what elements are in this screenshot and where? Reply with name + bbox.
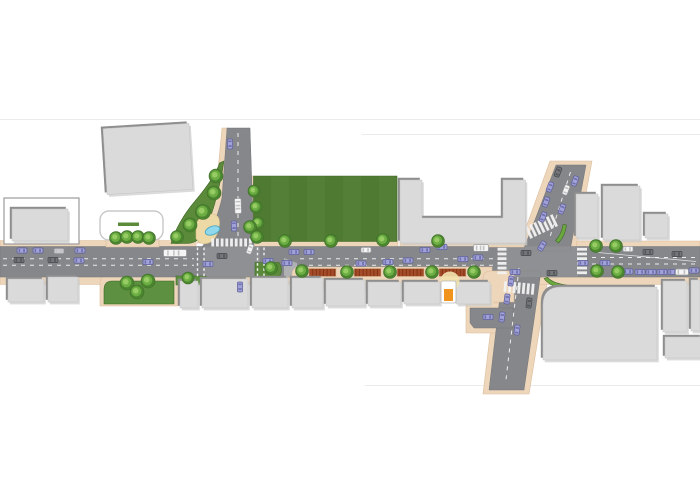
crosswalk-bar (221, 239, 224, 247)
tree (279, 235, 292, 248)
tree (250, 201, 262, 213)
building (250, 276, 290, 311)
tree (296, 265, 309, 278)
site-plan-drawing (0, 0, 700, 500)
crosswalk-bar (225, 239, 228, 247)
vehicle (356, 261, 366, 266)
vehicle (14, 257, 24, 262)
tree (248, 185, 260, 197)
vehicle (676, 269, 689, 275)
crosswalk-bar (498, 267, 507, 270)
vehicle (17, 248, 27, 253)
crosswalk-bar (498, 253, 507, 256)
vehicle (657, 269, 667, 274)
kiosk-roof (444, 289, 453, 301)
tree (207, 186, 221, 200)
building (10, 207, 70, 244)
tree (182, 272, 194, 284)
vehicle (203, 261, 213, 266)
vehicle (689, 268, 699, 273)
crosswalk-bar (577, 253, 587, 256)
crosswalk-bar (244, 239, 247, 247)
tree (171, 231, 184, 244)
building (290, 276, 325, 311)
crosswalk-bar (235, 239, 238, 247)
vehicle (74, 258, 84, 263)
vehicle (217, 253, 227, 258)
crosswalk-bar (498, 262, 507, 265)
vehicle (474, 245, 489, 252)
vehicle (646, 269, 656, 274)
vehicle (420, 247, 430, 252)
zebra-crosswalk (211, 239, 251, 247)
vehicle (304, 249, 314, 254)
vehicle (526, 298, 532, 309)
tree (591, 265, 604, 278)
street-planter (309, 269, 336, 277)
crosswalk-bar (230, 239, 233, 247)
vehicle (234, 198, 241, 213)
crosswalk-bar (577, 248, 587, 251)
building (663, 335, 700, 361)
vehicle (473, 255, 483, 260)
vehicle (227, 139, 233, 149)
vehicle (521, 250, 531, 255)
tree (141, 274, 155, 288)
vehicle (514, 325, 520, 336)
crosswalk-bar (216, 239, 219, 247)
vehicle (33, 248, 43, 253)
vehicle (231, 221, 237, 231)
crosswalk-bar (498, 248, 507, 251)
park-lawn (254, 176, 398, 242)
building (324, 278, 367, 309)
vehicle (48, 257, 58, 262)
tree (325, 235, 338, 248)
building (574, 192, 600, 241)
vehicle (237, 282, 242, 292)
crosswalk-bar (577, 257, 587, 260)
tree (341, 266, 354, 279)
crosswalk-bar (577, 271, 587, 274)
tree (612, 266, 625, 279)
tree (384, 266, 397, 279)
vehicle (672, 251, 682, 256)
shelter-canopy-bar (118, 223, 139, 227)
vehicle (499, 312, 505, 323)
building (689, 278, 700, 334)
building (541, 285, 659, 363)
tree (610, 240, 623, 253)
building (200, 277, 250, 311)
building (643, 212, 670, 241)
building (46, 275, 80, 305)
tree (209, 169, 223, 183)
tree (130, 285, 144, 299)
crosswalk-bar (211, 239, 214, 247)
tree (468, 266, 481, 279)
vehicle (600, 260, 610, 265)
tree (377, 234, 390, 247)
building (398, 178, 528, 246)
crosswalk-bar (240, 239, 243, 247)
tree (590, 240, 603, 253)
building (402, 280, 442, 307)
vehicle (361, 247, 371, 252)
building (601, 184, 642, 243)
tree (196, 205, 211, 220)
vehicle (578, 260, 588, 265)
vehicle (54, 248, 64, 253)
vehicle (164, 250, 187, 257)
crosswalk-bar (577, 267, 587, 270)
vehicle (623, 246, 633, 251)
vehicle (504, 294, 510, 305)
building (454, 280, 492, 307)
vehicle (547, 270, 557, 275)
vehicle (643, 249, 653, 254)
tree (143, 232, 156, 245)
vehicle (635, 269, 645, 274)
tree (426, 266, 439, 279)
tree (432, 235, 445, 248)
vehicle (75, 248, 85, 253)
vehicle (403, 258, 413, 263)
crosswalk-bar (498, 257, 507, 260)
tree (251, 231, 264, 244)
tree (265, 262, 278, 275)
vehicle (289, 249, 299, 254)
building (366, 280, 403, 309)
vehicle (282, 260, 292, 265)
building (101, 121, 195, 197)
street-planter (397, 269, 424, 277)
building (661, 279, 689, 335)
tree (183, 218, 197, 232)
vehicle (510, 269, 520, 274)
vehicle (508, 276, 514, 287)
building (6, 277, 46, 305)
street-planter (354, 269, 381, 277)
vehicle (458, 256, 468, 261)
vehicle (383, 259, 393, 264)
site-plan (0, 0, 700, 500)
vehicle (483, 314, 493, 319)
crosswalk-bar (498, 271, 507, 274)
vehicle (143, 259, 153, 264)
